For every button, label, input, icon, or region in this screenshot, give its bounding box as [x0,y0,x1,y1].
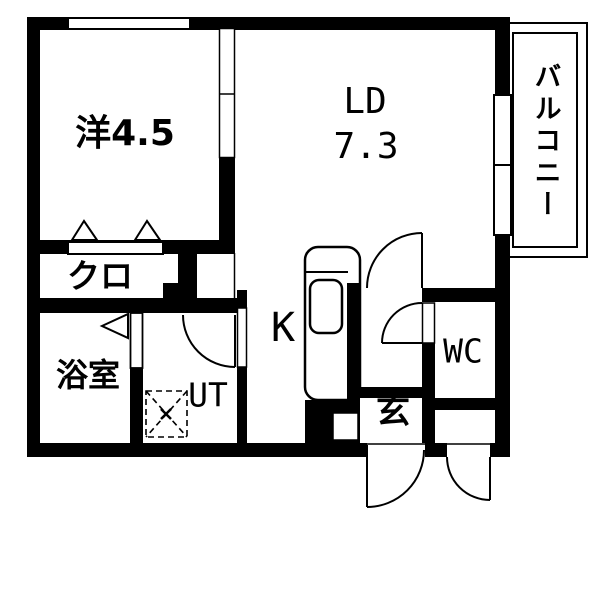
wall-ut-k-stub [237,290,247,308]
folding-door-triangle-icon [72,221,97,240]
wall-western-ld [219,158,235,253]
bath-door-panel [131,313,143,368]
washing-machine-pan-icon [146,391,187,437]
window-icon [494,95,511,235]
hinged-door-arc-icon [382,303,422,343]
wall-ut-k-lower [237,367,247,443]
entrance-niche [333,413,358,440]
outer-wall-left [27,17,40,457]
kitchen-label: K [271,308,295,348]
floor-plan: 洋4.5 LD 7.3 クロ 浴室 UT K 玄 WC バルコニー [0,0,600,600]
ut-doorway [238,308,247,367]
hinged-door-arc-icon [367,233,422,288]
hinged-door-arc-icon [447,457,490,500]
utility-label: UT [188,379,228,412]
balcony-label: バルコニー [532,62,559,222]
kitchen-sink-icon [310,280,342,333]
wall-entrance-wc [422,343,435,443]
floor-plan-drawing [0,0,600,600]
wc-doorway [423,303,435,343]
western-room-label: 洋4.5 [75,116,175,152]
wall-bath-ut-lower [130,368,143,443]
folding-door-triangle-icon [135,221,160,240]
wall-closet-step [163,283,197,300]
window-icon [68,18,190,29]
living-dining-area: 7.3 [333,129,398,165]
closet-opening [68,242,163,254]
sliding-partition-icon [220,29,235,158]
bathroom-label: 浴室 [56,359,120,391]
folding-door-triangle-icon [102,314,128,338]
living-dining-label: LD [343,84,386,120]
entrance-label: 玄 [376,395,410,429]
outer-wall-bottom-left [27,443,367,457]
hinged-door-arc-icon [367,445,424,507]
wall-below-closet [27,298,247,313]
closet-label: クロ [67,260,133,293]
wall-below-wc [435,398,497,410]
hinged-door-arc-icon [183,315,235,367]
outer-wall-right [495,17,510,457]
toilet-label: WC [443,335,483,368]
outer-wall-bottom-mid [425,443,447,457]
wall-above-wc [422,288,497,302]
